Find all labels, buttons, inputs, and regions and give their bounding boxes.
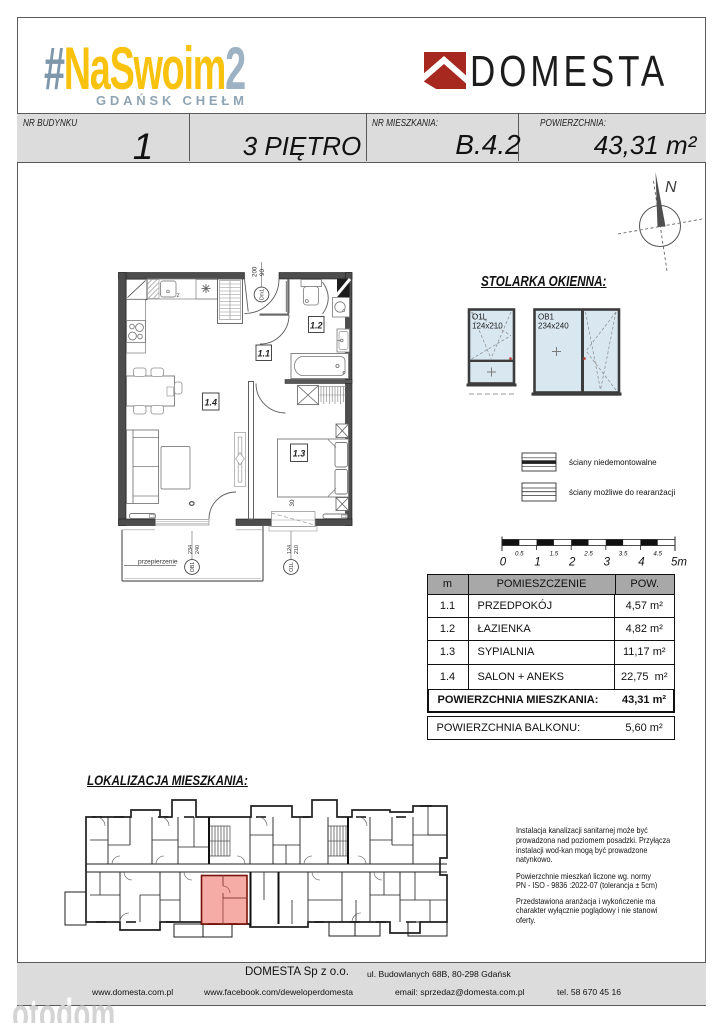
svg-text:1.3: 1.3 (293, 449, 306, 459)
svg-text:234: 234 (188, 545, 194, 554)
svg-text:234x240: 234x240 (538, 322, 569, 331)
svg-text:1.5: 1.5 (550, 551, 559, 558)
svg-text:z: z (177, 292, 180, 299)
svg-text:N: N (665, 179, 677, 196)
svg-text:210: 210 (294, 545, 300, 554)
svg-text:ściany możliwe do rearanżacji: ściany możliwe do rearanżacji (569, 488, 675, 497)
svg-text:OB1: OB1 (538, 313, 555, 322)
svg-text:1: 1 (534, 557, 540, 569)
svg-text:2.5: 2.5 (583, 551, 593, 558)
svg-text:5m: 5m (671, 557, 687, 569)
svg-text:0.5: 0.5 (515, 551, 524, 558)
svg-text:O1L: O1L (289, 562, 295, 572)
svg-text:Dm1: Dm1 (259, 289, 265, 300)
svg-text:4: 4 (638, 557, 644, 569)
svg-text:30: 30 (289, 499, 296, 506)
svg-text:1.1: 1.1 (257, 349, 270, 359)
svg-text:3: 3 (604, 557, 611, 569)
svg-text:ściany niedemontowalne: ściany niedemontowalne (569, 458, 657, 467)
svg-text:4.5: 4.5 (653, 551, 662, 558)
svg-text:0: 0 (500, 557, 507, 569)
svg-text:OB1: OB1 (190, 562, 196, 572)
svg-text:90: 90 (259, 269, 266, 276)
svg-text:240: 240 (195, 545, 201, 554)
svg-text:przepierzenie: przepierzenie (138, 559, 178, 566)
svg-text:200: 200 (252, 266, 259, 277)
svg-text:O1L: O1L (472, 313, 488, 322)
svg-text:1.4: 1.4 (204, 398, 217, 408)
svg-text:1.2: 1.2 (310, 321, 323, 331)
svg-text:124: 124 (287, 545, 293, 554)
svg-text:2: 2 (568, 557, 576, 569)
svg-text:3.5: 3.5 (619, 551, 628, 558)
svg-text:124x210: 124x210 (472, 322, 503, 331)
